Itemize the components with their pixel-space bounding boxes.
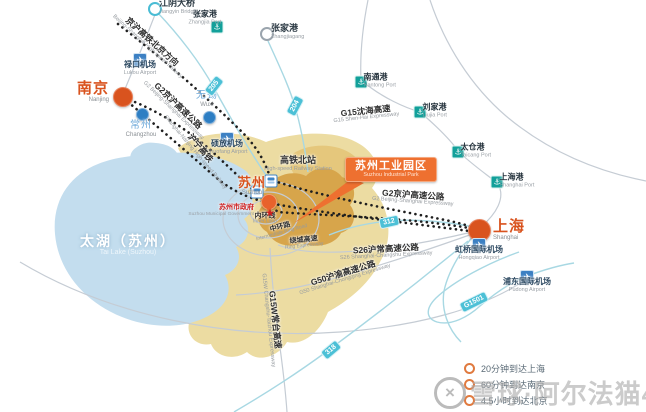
suzhou-government-name: 苏州市政府: [188, 204, 254, 212]
legend-item: 20分钟到达上海: [464, 360, 548, 376]
city-suzhou-name-en: Suzhou: [238, 190, 266, 196]
suzhou-government-label: 苏州市政府 Suzhou Municipal Government: [188, 204, 254, 218]
legend-ring-icon: [464, 363, 475, 374]
city-nanjing-label: 南京Nanjing: [77, 81, 109, 103]
legend: 20分钟到达上海60分钟到达南京4.5小时到达北京: [464, 360, 548, 408]
city-changzhou-label: 常州Changzhou: [126, 121, 157, 138]
legend-item: 4.5小时到达北京: [464, 392, 548, 408]
lake-taihu-label: 太湖（苏州） Tai Lake (Suzhou): [80, 233, 176, 257]
airport-marker: ✈虹桥国际机场Hongqiao Airport: [472, 238, 486, 252]
lake-taihu-name-en: Tai Lake (Suzhou): [80, 249, 176, 257]
port-marker: ⚓刘家港Liujia Port: [414, 106, 427, 119]
government-star-icon: ★: [265, 209, 275, 220]
airport-marker: ✈浦东国际机场Pudong Airport: [520, 270, 534, 284]
legend-ring-icon: [464, 379, 475, 390]
city-changzhou-dot[interactable]: [136, 108, 149, 121]
city-suzhou-name: 苏州: [238, 176, 266, 190]
landmark-marker: 江阴大桥Jiangyin Bridge: [148, 2, 162, 16]
airport-marker: ✈硕放机场Shuofang Airport: [220, 132, 234, 146]
port-marker: ⚓南通港Nantong Port: [355, 76, 368, 89]
city-wuxi-dot[interactable]: [203, 111, 216, 124]
lake-taihu-name: 太湖（苏州）: [80, 233, 176, 249]
sip-callout-label-en: Suzhou Industrial Park: [346, 172, 436, 178]
suzhou-government-name-en: Suzhou Municipal Government: [188, 212, 254, 218]
legend-item: 60分钟到达南京: [464, 376, 548, 392]
city-nanjing-dot[interactable]: [113, 87, 133, 107]
sip-callout-label: 苏州工业园区: [346, 160, 436, 172]
port-marker: ⚓太仓港Taicang Port: [452, 146, 465, 159]
legend-ring-icon: [464, 395, 475, 406]
port-marker: ⚓张家港Zhangjia Port: [211, 21, 224, 34]
sip-callout[interactable]: 苏州工业园区 Suzhou Industrial Park: [345, 157, 437, 182]
landmark-marker: 张家港Zhangjiagang: [260, 27, 274, 41]
map-canvas: 南京Nanjing上海Shanghai无锡Wuxi常州Changzhou⚓张家港…: [0, 0, 646, 412]
port-marker: ⚓上海港Shanghai Port: [491, 176, 504, 189]
road-g1501-pudong: [428, 252, 574, 323]
airport-marker: ✈禄口机场Lukou Airport: [133, 53, 147, 67]
city-shanghai-label: 上海Shanghai: [493, 219, 525, 241]
city-suzhou-label: 苏州 Suzhou: [238, 176, 266, 196]
train-station-icon[interactable]: [265, 175, 278, 188]
station-label: 高铁北站High-speed Railway Station: [264, 156, 332, 172]
